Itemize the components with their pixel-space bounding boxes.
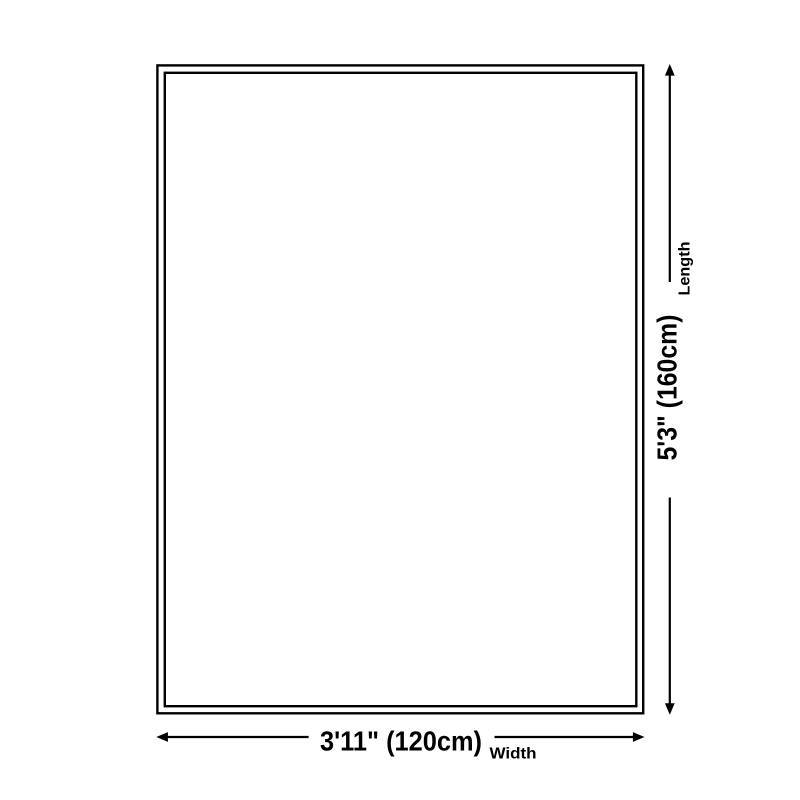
svg-text:3'11" (120cm): 3'11" (120cm): [320, 725, 482, 756]
svg-text:Width: Width: [490, 746, 537, 763]
svg-text:5'3" (160cm): 5'3" (160cm): [652, 315, 683, 461]
svg-text:Length: Length: [676, 242, 693, 296]
